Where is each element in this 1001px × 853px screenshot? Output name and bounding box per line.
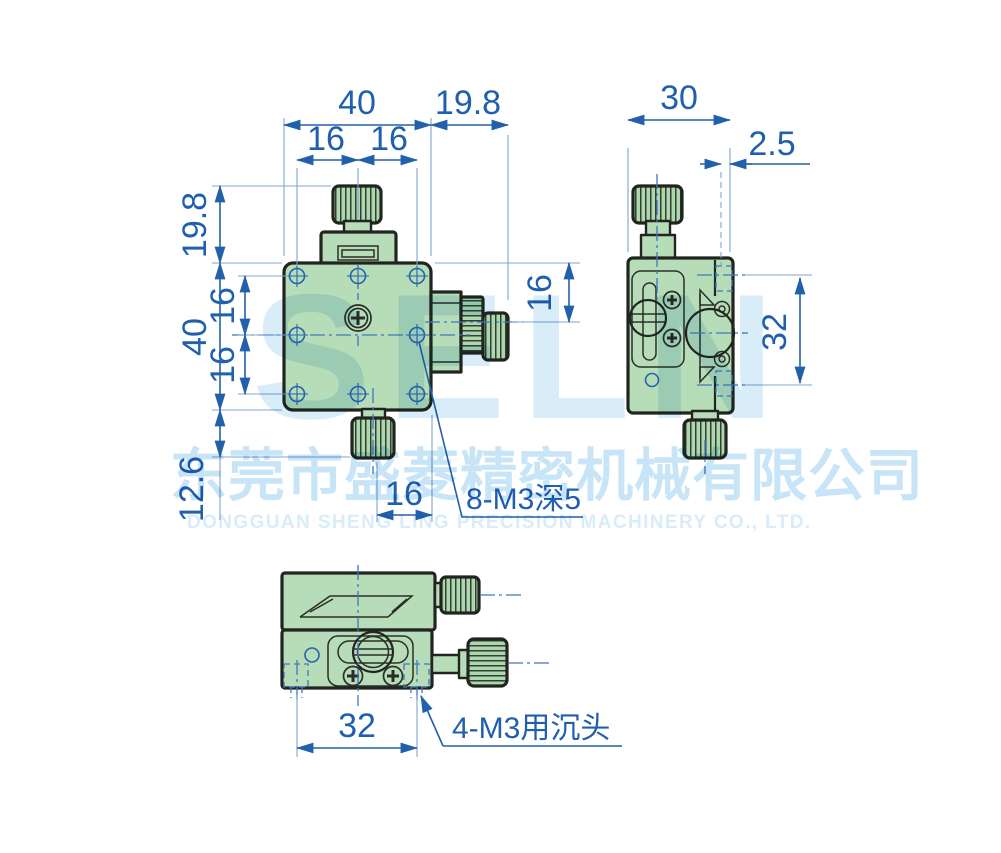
dim-front-hole-right-label: 16 [370, 120, 408, 158]
dim-side-hole-span: 32 [745, 275, 812, 385]
dim-side-hole-span-label: 32 [756, 313, 794, 351]
dim-front-offset-right-label: 19.8 [435, 84, 501, 122]
technical-drawing: 40 19.8 16 16 19.8 40 16 16 12.6 [0, 0, 1001, 853]
dim-front-knob-height: 19.8 [176, 186, 331, 263]
bottom-upper-knob [441, 577, 479, 613]
dim-front-height: 40 [176, 263, 282, 410]
dim-front-row-lower-label: 16 [204, 346, 242, 384]
dim-bottom-hole-span: 32 [297, 695, 417, 757]
dim-front-hole-left-label: 16 [307, 120, 345, 158]
dim-front-offset-right: 19.8 [431, 84, 508, 300]
dim-front-hole-rows: 16 16 [204, 276, 288, 394]
bottom-view [282, 565, 552, 706]
dim-side-plate-offset-label: 2.5 [748, 125, 795, 163]
dim-side-width-label: 30 [660, 79, 698, 117]
side-top-knob-collar [641, 235, 675, 260]
front-center-screw [345, 305, 371, 331]
front-view [232, 186, 524, 474]
dim-front-base-knob-label: 12.6 [173, 456, 211, 522]
drawing-canvas: 40 19.8 16 16 19.8 40 16 16 12.6 [0, 0, 1001, 853]
front-right-knob-shaft [461, 297, 483, 353]
dim-front-axis-offset-label: 16 [521, 274, 559, 312]
callout-counterbore-label: 4-M3用沉头 [452, 712, 610, 745]
dim-front-bottom-offset-label: 16 [385, 475, 423, 513]
dim-side-width: 30 [628, 79, 730, 252]
dim-bottom-hole-span-label: 32 [338, 707, 376, 745]
dim-side-plate-offset: 2.5 [700, 125, 810, 266]
front-right-knob-grip [483, 313, 508, 360]
bottom-lower-knob [468, 639, 507, 686]
front-top-knob [333, 186, 381, 223]
front-right-knob-mount [431, 292, 461, 372]
dim-front-row-upper-label: 16 [204, 287, 242, 325]
dim-front-base-knob: 12.6 [173, 410, 350, 522]
callout-thread-holes-label: 8-M3深5 [466, 483, 581, 516]
callout-counterbore: 4-M3用沉头 [421, 696, 622, 746]
dim-front-width-label: 40 [338, 84, 376, 122]
dim-front-knob-height-label: 19.8 [176, 192, 214, 258]
